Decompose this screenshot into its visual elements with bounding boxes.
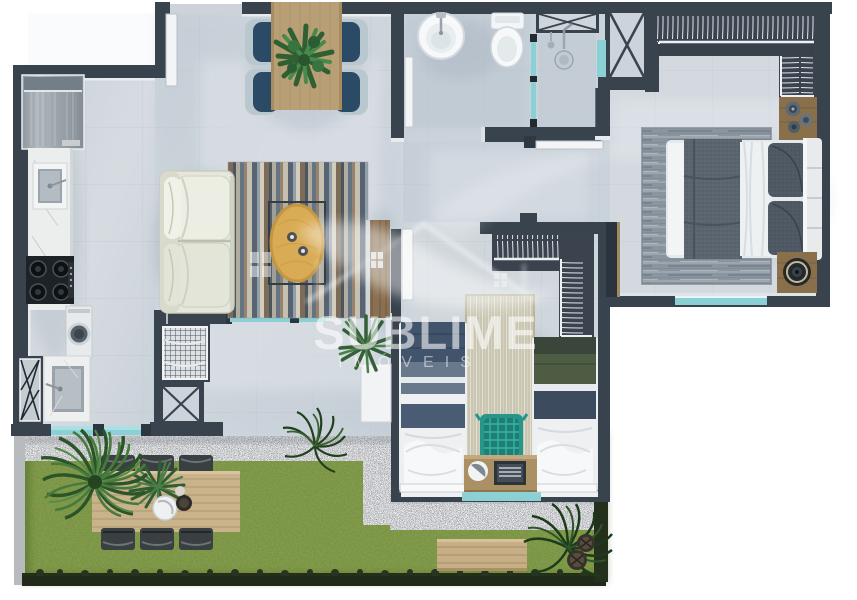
svg-text:CRECI 17832: CRECI 17832 [467,299,526,305]
svg-text:SUBLIME: SUBLIME [313,306,539,359]
svg-text:IMÓVEIS: IMÓVEIS [338,352,482,371]
